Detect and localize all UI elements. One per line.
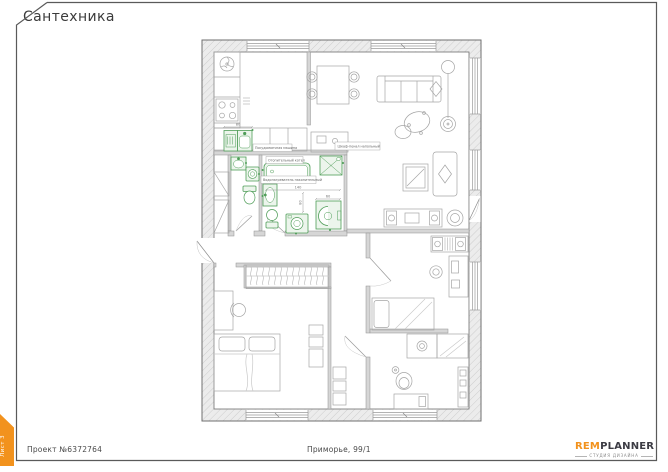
wc-washing-machine-icon	[246, 167, 259, 181]
wc-sink-icon	[231, 157, 246, 170]
svg-text:80: 80	[236, 123, 241, 127]
shower-seat-icon	[316, 201, 341, 229]
tagline-dash-left	[575, 456, 587, 457]
kitchen-sink-icon	[238, 131, 253, 152]
dishwasher-icon	[224, 131, 238, 152]
floor-plan: 80 140 80 60 Посудомоечная машина Шкаф-п…	[0, 0, 668, 472]
logo-tagline: СТУДИЯ ДИЗАЙНА	[575, 454, 653, 458]
logo-brand: REMPLANNER	[575, 442, 653, 452]
logo-brand-orange: REM	[575, 441, 600, 452]
svg-text:60: 60	[326, 195, 331, 199]
wc-toilet-icon	[243, 186, 256, 204]
entrance-door	[197, 238, 215, 263]
tagline-dash-right	[641, 456, 653, 457]
svg-text:Шкаф-пенал напольный: Шкаф-пенал напольный	[338, 144, 380, 148]
washbasin-icon	[263, 184, 277, 206]
svg-text:140: 140	[295, 186, 303, 190]
label-floor-cabinet: Шкаф-пенал напольный	[335, 142, 380, 150]
label-water-heater: Водонагреватель накопительный	[261, 176, 322, 184]
washing-machine-icon	[286, 214, 308, 233]
svg-text:Водонагреватель накопительный: Водонагреватель накопительный	[263, 178, 322, 182]
balcony-door	[469, 196, 481, 222]
label-boiler: Отопительный котел	[266, 157, 305, 164]
sheet-page: { "sheet": { "title": "Сантехника" }, "s…	[0, 0, 668, 472]
corner-shower-icon	[320, 156, 342, 175]
tagline-text: СТУДИЯ ДИЗАЙНА	[589, 454, 638, 458]
label-dishwasher: Посудомоечная машина	[253, 144, 297, 152]
toilet-icon	[266, 210, 278, 229]
footer-project-number: Проект №6372764	[27, 445, 102, 454]
svg-text:Посудомоечная машина: Посудомоечная машина	[255, 146, 297, 150]
svg-text:Отопительный котел: Отопительный котел	[268, 158, 305, 162]
remplanner-logo: REMPLANNER СТУДИЯ ДИЗАЙНА	[575, 442, 653, 458]
logo-brand-dark: PLANNER	[600, 441, 654, 452]
footer-address: Приморье, 99/1	[307, 445, 371, 454]
sheet-number-label: Лист 3	[0, 426, 14, 466]
svg-text:80: 80	[299, 200, 303, 205]
